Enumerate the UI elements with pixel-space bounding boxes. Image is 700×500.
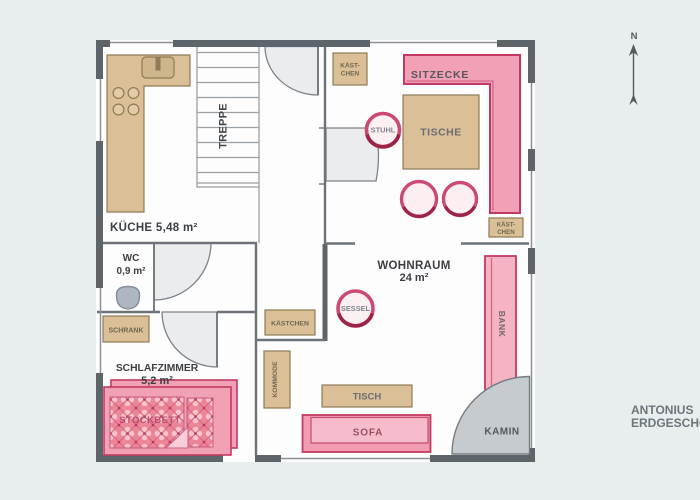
svg-text:TISCH: TISCH xyxy=(353,392,382,403)
svg-text:KOMMODE: KOMMODE xyxy=(272,361,279,398)
svg-text:TREPPE: TREPPE xyxy=(218,103,230,149)
svg-text:SOFA: SOFA xyxy=(353,428,383,439)
svg-text:ANTONIUS: ANTONIUS xyxy=(631,403,693,417)
svg-text:SESSEL: SESSEL xyxy=(341,304,371,313)
svg-text:CHEN: CHEN xyxy=(341,71,360,78)
svg-text:KÄST-: KÄST- xyxy=(497,222,516,229)
svg-text:5,2 m²: 5,2 m² xyxy=(141,375,173,387)
svg-text:ERDGESCHOSS: ERDGESCHOSS xyxy=(631,416,700,430)
svg-text:SITZECKE: SITZECKE xyxy=(411,69,469,81)
svg-text:STOCKBETT: STOCKBETT xyxy=(119,415,180,426)
svg-text:KÄST-: KÄST- xyxy=(340,62,360,70)
svg-text:KÜCHE 5,48 m²: KÜCHE 5,48 m² xyxy=(110,221,198,234)
svg-text:WC: WC xyxy=(123,253,140,264)
svg-text:SCHRANK: SCHRANK xyxy=(109,328,144,335)
svg-text:SCHLAFZIMMER: SCHLAFZIMMER xyxy=(116,363,199,374)
svg-text:WOHNRAUM: WOHNRAUM xyxy=(377,260,450,272)
svg-text:24 m²: 24 m² xyxy=(400,272,429,284)
svg-text:BANK: BANK xyxy=(497,311,507,338)
svg-text:STUHL: STUHL xyxy=(371,126,396,135)
svg-text:KÄSTCHEN: KÄSTCHEN xyxy=(271,320,309,328)
svg-text:KAMIN: KAMIN xyxy=(484,427,519,438)
svg-text:0,9 m²: 0,9 m² xyxy=(117,266,147,277)
svg-text:TISCHE: TISCHE xyxy=(420,127,462,139)
svg-text:N: N xyxy=(631,31,638,42)
svg-text:CHEN: CHEN xyxy=(497,229,515,236)
